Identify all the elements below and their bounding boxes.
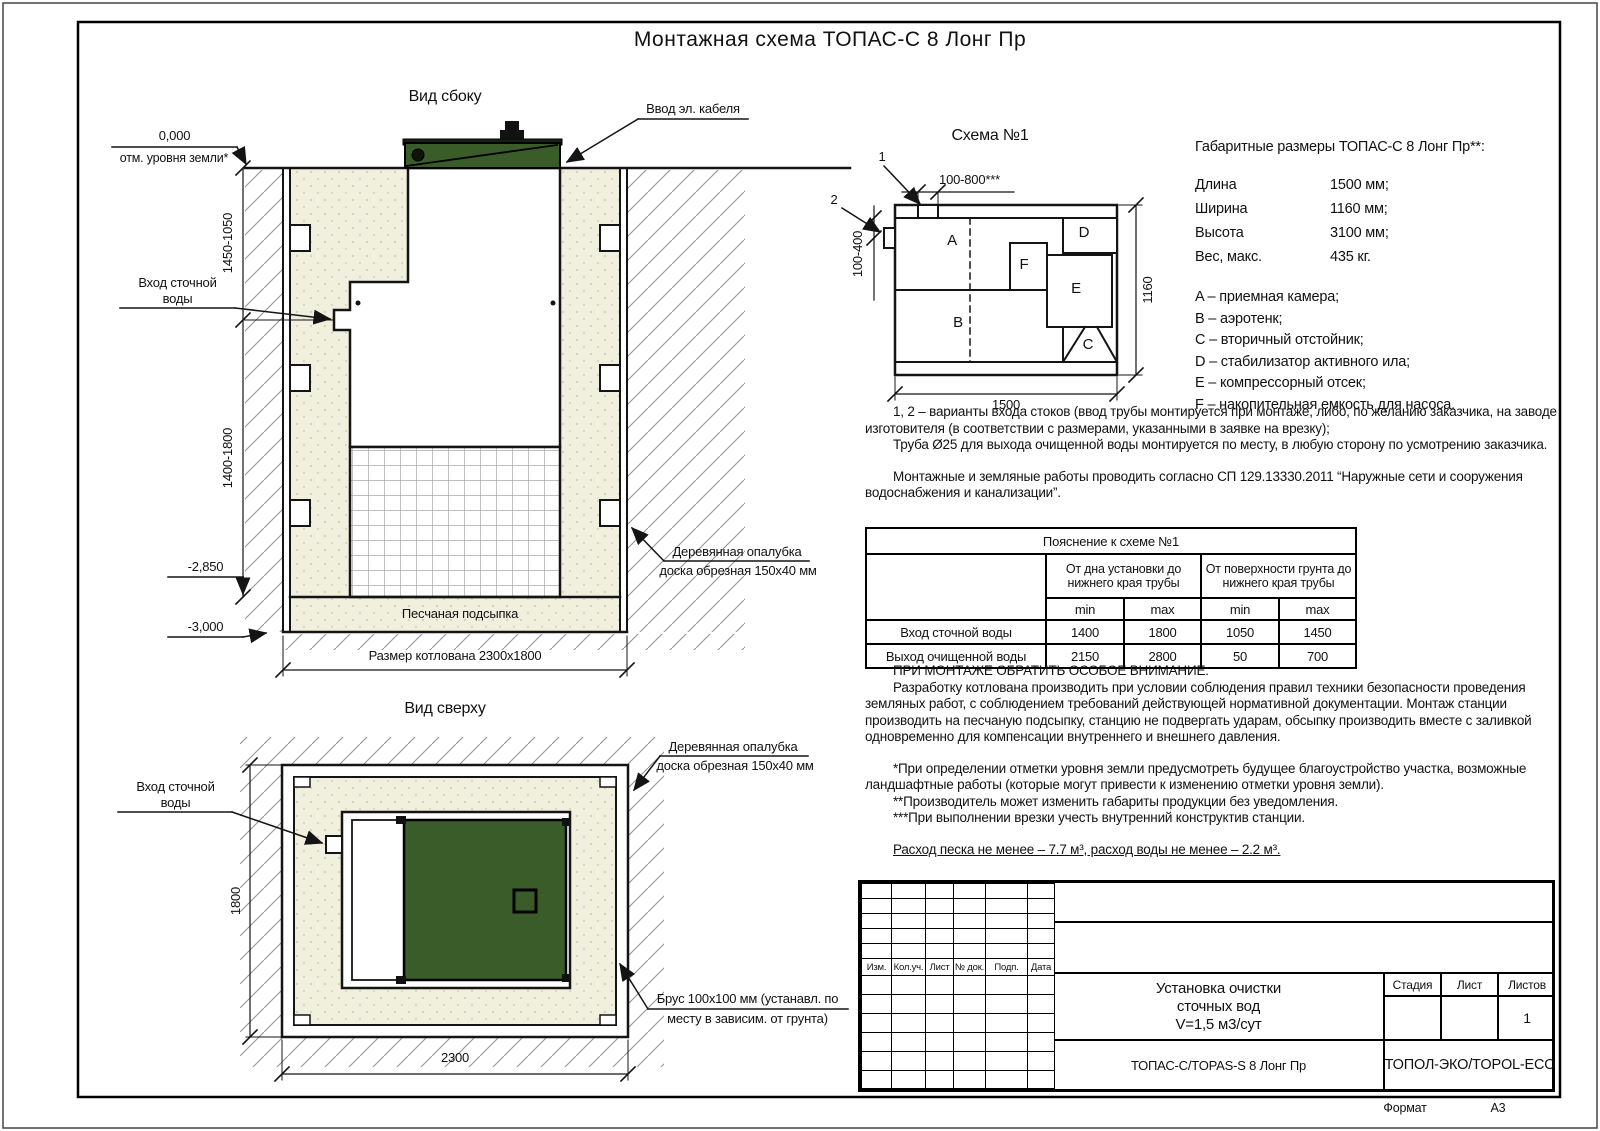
spec-row: Длина1500 мм; (1195, 176, 1565, 194)
inlet-top-label-line2: воды (118, 795, 233, 811)
inlet-top-label-line1: Вход сточной (118, 779, 233, 795)
ground-level-note: отм. уровня земли* (104, 150, 244, 166)
top-view-title: Вид сверху (375, 700, 515, 718)
sheet-header: Лист (1442, 974, 1499, 997)
legend-item: E – компрессорный отсек; (1195, 374, 1565, 392)
entry2-label: 2 (826, 192, 842, 208)
rev-col-izm: Изм. (862, 959, 892, 976)
zone-e-label: E (1068, 280, 1084, 297)
row-value: 1400 (1046, 620, 1124, 644)
sheet-value (1442, 997, 1499, 1041)
legend-item: A – приемная камера; (1195, 288, 1565, 306)
page-title: Монтажная схема ТОПАС-С 8 Лонг Пр (550, 28, 1110, 52)
title-block-top-strip (1054, 883, 1555, 923)
ground-level-mark: 0,000 (112, 128, 237, 144)
width-dim: 1800 (228, 871, 244, 931)
format-label: Формат (1360, 1101, 1450, 1115)
zone-a-label: A (944, 232, 960, 249)
legend-item: D – стабилизатор активного ила; (1195, 353, 1565, 371)
rev-col-ndok: № док. (954, 959, 986, 976)
title-block-code-strip (1054, 923, 1555, 974)
note-paragraph: Труба Ø25 для выхода очищенной воды монт… (865, 437, 1559, 454)
sheets-value: 1 (1499, 997, 1555, 1041)
table-col-group1: От дна установки до нижнего края трубы (1046, 554, 1201, 598)
rev-col-list: Лист (926, 959, 954, 976)
dimensions-block: Габаритные размеры ТОПАС-С 8 Лонг Пр**: … (1195, 138, 1565, 417)
schema1-drawing (842, 166, 1143, 401)
tank-lid (403, 121, 562, 168)
table-caption: Пояснение к схеме №1 (866, 528, 1356, 554)
inlet-variant-1 (918, 205, 938, 218)
level-sand-mark: -2,850 (168, 559, 243, 575)
product-name: ТОПАС-С/TOPAS-S 8 Лонг Пр (1054, 1041, 1385, 1089)
row-value: 1050 (1201, 620, 1279, 644)
tank-lower-section (350, 447, 560, 597)
inlet-label-line1: Вход сточной (120, 275, 235, 291)
level-bottom-mark: -3,000 (168, 619, 243, 635)
consumption-note: Расход песка не менее – 7.7 м³, расход в… (865, 842, 1561, 859)
formwork-board-left (283, 168, 290, 632)
row-value: 1800 (1124, 620, 1201, 644)
row-name: Вход сточной воды (866, 620, 1046, 644)
legend-item: B – аэротенк; (1195, 310, 1565, 328)
zone-legend: A – приемная камера; B – аэротенк; C – в… (1195, 288, 1565, 414)
vent-cap-icon (500, 130, 524, 139)
zone-b-label: B (950, 314, 966, 331)
tank-plan-white-section (352, 820, 404, 980)
rev-col-data: Дата (1028, 959, 1055, 976)
notes-block: 1, 2 – варианты входа стоков (ввод трубы… (865, 404, 1559, 502)
pit-size-dim: Размер котлована 2300х1800 (330, 648, 580, 664)
formwork-label-line2: доска обрезная 150х40 мм (648, 563, 828, 579)
schema-dim-height: 1160 (1140, 260, 1156, 320)
spec-row: Высота3100 мм; (1195, 224, 1565, 242)
formwork-board-right (620, 168, 627, 632)
zone-d-label: D (1076, 224, 1092, 241)
stage-value (1385, 997, 1442, 1041)
inlet-label-line2: воды (120, 291, 235, 307)
schema1-title: Схема №1 (925, 127, 1055, 145)
inlet-variant-2 (884, 228, 895, 248)
row-value: 1450 (1279, 620, 1356, 644)
doc-title: Установка очистки сточных вод V=1,5 м3/с… (1054, 974, 1385, 1041)
revision-table: Изм. Кол.уч. Лист № док. Подп. Дата (861, 883, 1055, 1089)
zone-f-label: F (1016, 256, 1032, 273)
zone-c-label: C (1080, 336, 1096, 353)
spec-row: Вес, макс.435 кг. (1195, 248, 1565, 266)
stage-header: Стадия (1385, 974, 1442, 997)
entry1-label: 1 (874, 149, 890, 165)
beam-label-line1: Брус 100х100 мм (устанавл. по (645, 991, 850, 1007)
spec-row: Ширина1160 мм; (1195, 200, 1565, 218)
length-dim: 2300 (405, 1050, 505, 1066)
max-header: max (1124, 598, 1201, 620)
attention-note3: ***При выполнении врезки учесть внутренн… (865, 810, 1561, 827)
side-view-title: Вид сбоку (375, 88, 515, 106)
attention-heading: ПРИ МОНТАЖЕ ОБРАТИТЬ ОСОБОЕ ВНИМАНИЕ: (865, 663, 1561, 680)
schema-dim-top: 100-800*** (912, 172, 1027, 188)
min-header: min (1201, 598, 1279, 620)
sheets-header: Листов (1499, 974, 1555, 997)
rev-col-koluch: Кол.уч. (892, 959, 926, 976)
formwork-label-line1: Деревянная опалубка (662, 544, 812, 560)
cable-entry-label: Ввод эл. кабеля (634, 101, 752, 117)
schema-dim-left: 100-400 (850, 214, 866, 294)
dimensions-title: Габаритные размеры ТОПАС-С 8 Лонг Пр**: (1195, 138, 1565, 156)
vent-hatch-icon (514, 890, 536, 912)
note-paragraph: 1, 2 – варианты входа стоков (ввод трубы… (865, 404, 1559, 437)
drawing-sheet: Монтажная схема ТОПАС-С 8 Лонг Пр Вид сб… (0, 0, 1600, 1131)
rev-col-podp: Подп. (986, 959, 1028, 976)
note-paragraph: Монтажные и земляные работы проводить со… (865, 469, 1559, 502)
table-empty-cell (866, 554, 1046, 620)
beam-label-line2: месту в зависим. от грунта) (645, 1011, 850, 1027)
table-col-group2: От поверхности грунта до нижнего края тр… (1201, 554, 1356, 598)
formwork-top-label-line1: Деревянная опалубка (658, 739, 808, 755)
table-row: Вход сточной воды 1400 1800 1050 1450 (866, 620, 1356, 644)
tank-plan-lid (404, 820, 566, 980)
sand-bed-label: Песчаная подсыпка (370, 606, 550, 622)
company-name: ТОПОЛ-ЭКО/TOPOL-ECO (1385, 1041, 1555, 1089)
attention-block: ПРИ МОНТАЖЕ ОБРАТИТЬ ОСОБОЕ ВНИМАНИЕ: Ра… (865, 663, 1561, 858)
depth-dim-bottom: 1400-1800 (220, 403, 236, 513)
legend-item: C – вторичный отстойник; (1195, 331, 1565, 349)
format-value: А3 (1475, 1101, 1521, 1115)
attention-note1: *При определении отметки уровня земли пр… (865, 761, 1561, 794)
ground-hatch-left (245, 170, 283, 632)
min-header: min (1046, 598, 1124, 620)
max-header: max (1279, 598, 1356, 620)
inlet-pipe-plan (326, 836, 342, 853)
explanation-table: Пояснение к схеме №1 От дна установки до… (865, 527, 1357, 669)
attention-body: Разработку котлована производить при усл… (865, 680, 1561, 746)
formwork-top-label-line2: доска обрезная 150х40 мм (645, 758, 825, 774)
title-block: Изм. Кол.уч. Лист № док. Подп. Дата Уста… (858, 880, 1555, 1092)
attention-note2: **Производитель может изменить габариты … (865, 794, 1561, 811)
